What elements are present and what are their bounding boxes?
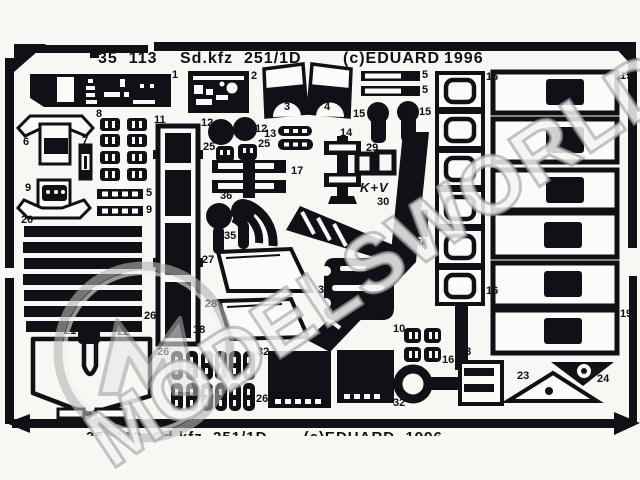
product-photo-pe-fret: 35 113 Sd.kfz 251/1D (c)EDUARD 1996 K+V … — [0, 0, 640, 480]
watermark-logo — [0, 0, 640, 480]
